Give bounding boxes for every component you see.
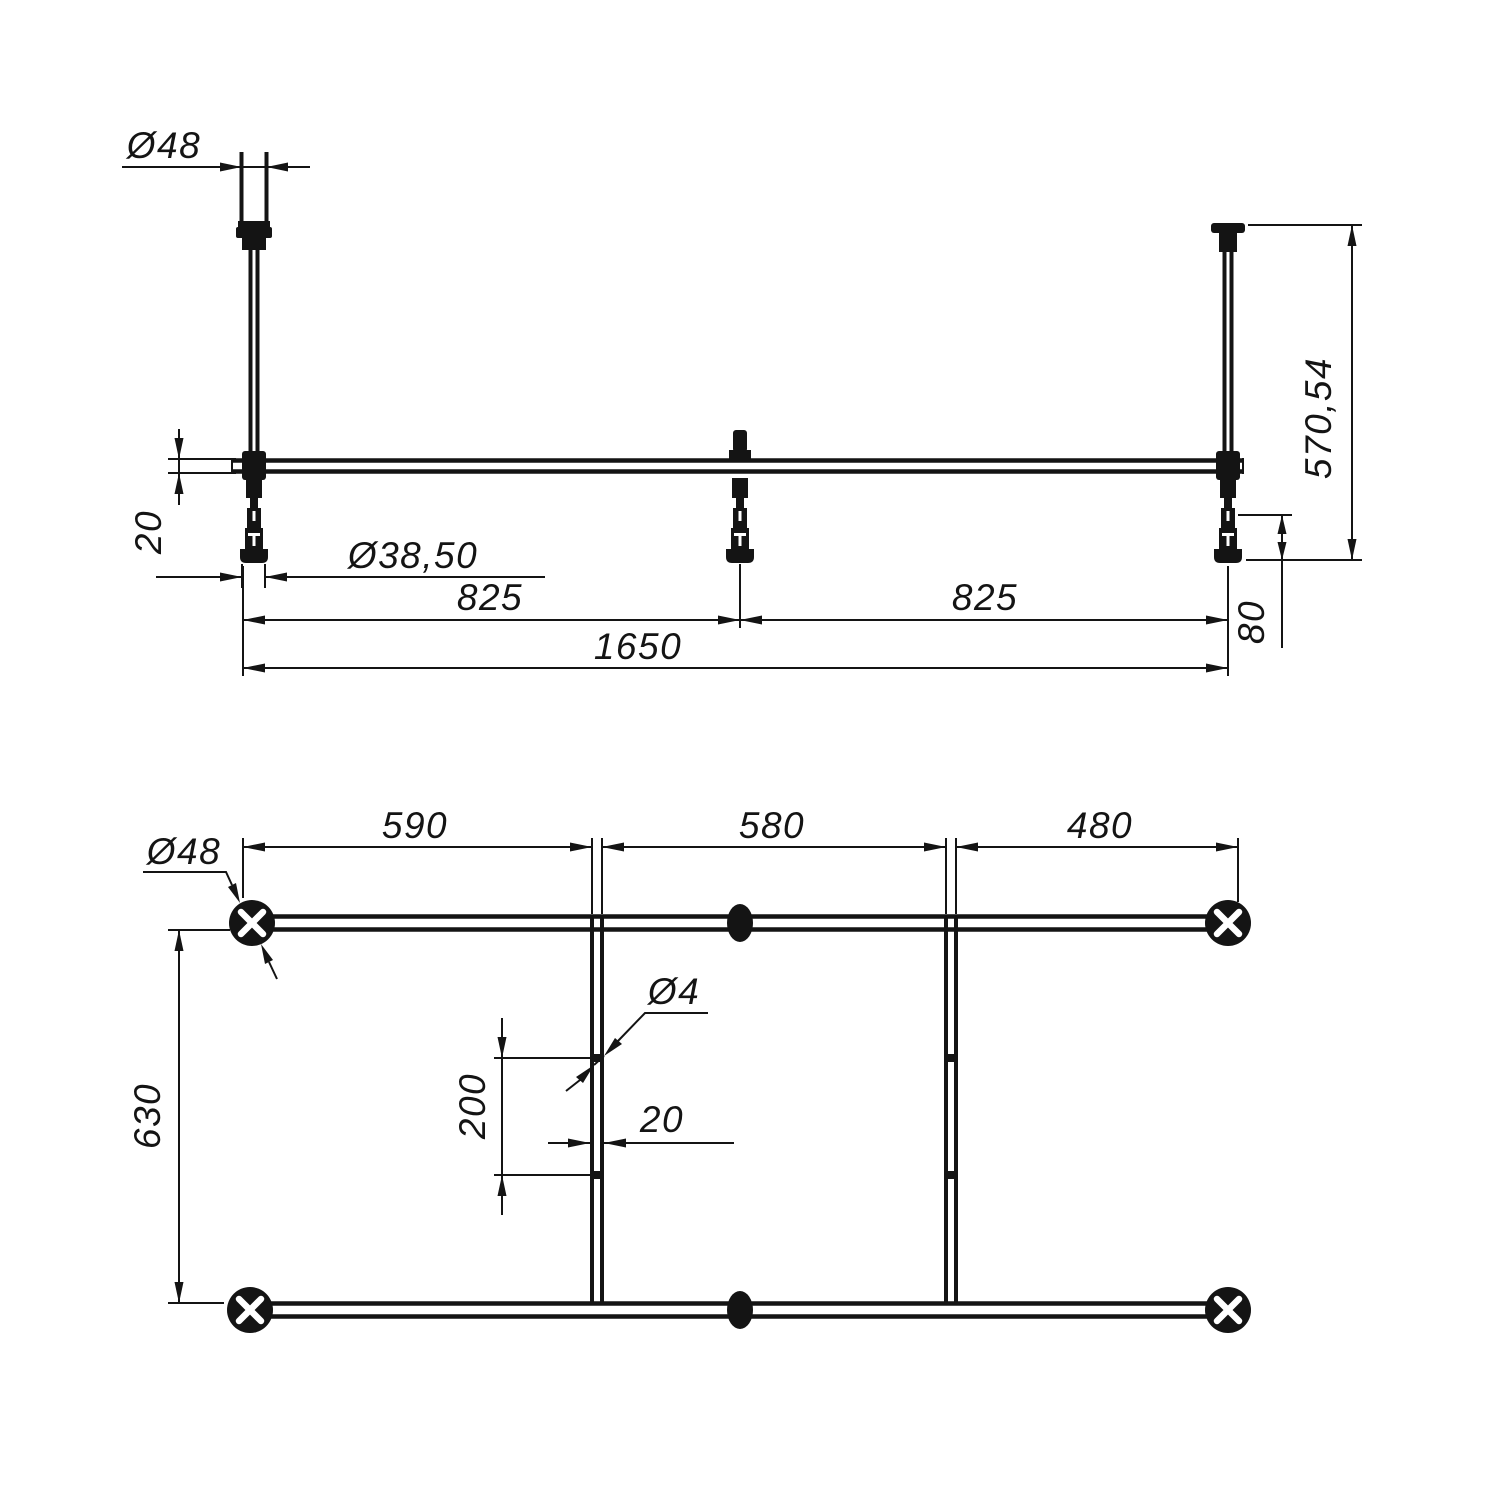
arrowhead bbox=[265, 573, 287, 582]
dim-label: 590 bbox=[382, 805, 448, 846]
dim-front-20: 20 bbox=[128, 429, 236, 555]
arrowhead bbox=[1348, 225, 1357, 246]
center-leg-stub-base bbox=[729, 450, 751, 460]
left-leg-junction bbox=[242, 451, 266, 480]
dim-plan-200: 200 bbox=[452, 1018, 592, 1215]
arrowhead bbox=[228, 883, 240, 903]
dim-front-80: 80 bbox=[1231, 515, 1362, 648]
arrowhead bbox=[956, 843, 978, 852]
arrowhead bbox=[261, 944, 273, 964]
left-leg-socket bbox=[242, 152, 267, 225]
drill-hole bbox=[946, 1171, 956, 1179]
drill-hole bbox=[592, 1171, 602, 1179]
foot-slot bbox=[739, 511, 742, 521]
foot-slot bbox=[1227, 533, 1230, 546]
dim-plan-580: 580 bbox=[602, 805, 946, 852]
dim-label: 20 bbox=[639, 1099, 684, 1140]
foot-pad-bottom-right bbox=[1205, 1287, 1251, 1333]
foot-pad-top-left bbox=[229, 900, 275, 946]
extension-lines bbox=[243, 838, 1238, 914]
center-foot-flare bbox=[726, 549, 754, 563]
arrowhead bbox=[740, 616, 762, 625]
dim-label: Ø48 bbox=[145, 831, 221, 872]
left-cross-rail bbox=[592, 918, 602, 1304]
dim-label: 630 bbox=[127, 1083, 168, 1149]
drawing-sheet: Ø48 20 Ø38,50 825 bbox=[0, 0, 1500, 1500]
arrowhead bbox=[175, 930, 184, 951]
foot-slot bbox=[739, 533, 742, 546]
left-leg bbox=[236, 152, 272, 563]
arrowhead bbox=[718, 616, 740, 625]
arrowhead bbox=[243, 664, 265, 673]
dim-label: 200 bbox=[452, 1073, 493, 1140]
dim-label: Ø4 bbox=[646, 971, 700, 1012]
center-leg bbox=[726, 430, 754, 563]
right-foot-flare bbox=[1214, 549, 1242, 563]
arrowhead bbox=[175, 1282, 184, 1303]
arrowhead bbox=[1206, 616, 1228, 625]
arrowhead bbox=[570, 843, 592, 852]
dim-front-1650: 1650 bbox=[243, 626, 1228, 673]
foot-slot bbox=[1227, 511, 1230, 521]
arrowhead bbox=[175, 473, 184, 494]
right-adjustable-foot bbox=[1214, 478, 1242, 563]
front-view: Ø48 20 Ø38,50 825 bbox=[122, 125, 1362, 676]
right-cross-rail bbox=[946, 918, 956, 1304]
center-leg-mount bbox=[727, 904, 753, 942]
crossbar-walls bbox=[232, 461, 1243, 472]
dim-label: 580 bbox=[739, 805, 805, 846]
dim-label: 825 bbox=[457, 577, 523, 618]
dim-front-825-left: 825 bbox=[243, 577, 740, 625]
right-leg-collar bbox=[1219, 231, 1237, 252]
left-leg-socket-base bbox=[238, 221, 270, 228]
foot-slot bbox=[253, 533, 256, 546]
dim-plan-480: 480 bbox=[956, 805, 1238, 852]
arrowhead bbox=[175, 438, 184, 459]
left-leg-tube bbox=[251, 249, 258, 455]
arrowhead bbox=[924, 843, 946, 852]
arrowhead bbox=[498, 1037, 507, 1058]
foot-pad-bottom-left bbox=[227, 1287, 273, 1333]
arrowhead bbox=[604, 1139, 626, 1148]
dim-plan-20: 20 bbox=[548, 1099, 734, 1148]
arrowhead bbox=[568, 1139, 590, 1148]
arrowhead bbox=[267, 163, 289, 172]
right-leg-tube bbox=[1225, 252, 1232, 455]
dim-label: Ø38,50 bbox=[346, 535, 478, 576]
dim-plan-630: 630 bbox=[127, 930, 230, 1303]
left-adjustable-foot bbox=[240, 478, 268, 563]
arrowhead bbox=[1278, 515, 1287, 534]
dim-label: 20 bbox=[128, 510, 169, 555]
left-leg-collar-neck bbox=[242, 236, 266, 250]
dim-front-570-54: 570,54 bbox=[1248, 225, 1362, 560]
dim-front-dia48: Ø48 bbox=[122, 125, 310, 172]
arrowhead bbox=[1348, 539, 1357, 560]
center-adjustable-foot bbox=[726, 478, 754, 563]
arrowhead bbox=[602, 843, 624, 852]
foot-pad-top-right bbox=[1205, 900, 1251, 946]
arrowhead bbox=[1278, 542, 1287, 560]
center-leg-mount bbox=[727, 1291, 753, 1329]
arrowhead bbox=[220, 573, 242, 582]
arrowhead bbox=[498, 1175, 507, 1196]
drill-hole bbox=[946, 1054, 956, 1062]
dim-label: 80 bbox=[1231, 600, 1272, 644]
arrowhead bbox=[1216, 843, 1238, 852]
right-leg-junction bbox=[1216, 451, 1240, 480]
dim-label: 1650 bbox=[594, 626, 682, 667]
technical-drawing-canvas: Ø48 20 Ø38,50 825 bbox=[0, 0, 1500, 1500]
dim-label: 825 bbox=[952, 577, 1018, 618]
arrowhead bbox=[220, 163, 242, 172]
plan-view: 590 580 480 Ø48 630 bbox=[127, 805, 1251, 1333]
dim-plan-590: 590 bbox=[243, 805, 592, 852]
dim-label: 570,54 bbox=[1298, 357, 1339, 479]
dim-front-825-right: 825 bbox=[740, 577, 1228, 625]
right-leg bbox=[1211, 223, 1245, 563]
left-foot-flare bbox=[240, 549, 268, 563]
dim-label: 480 bbox=[1067, 805, 1133, 846]
arrowhead bbox=[243, 616, 265, 625]
center-leg-stub bbox=[733, 430, 747, 452]
arrowhead bbox=[1206, 664, 1228, 673]
arrowhead bbox=[243, 843, 265, 852]
dim-label: Ø48 bbox=[125, 125, 201, 166]
foot-slot bbox=[253, 511, 256, 521]
crossbar bbox=[232, 458, 1243, 474]
dim-plan-dia4: Ø4 bbox=[566, 971, 708, 1091]
